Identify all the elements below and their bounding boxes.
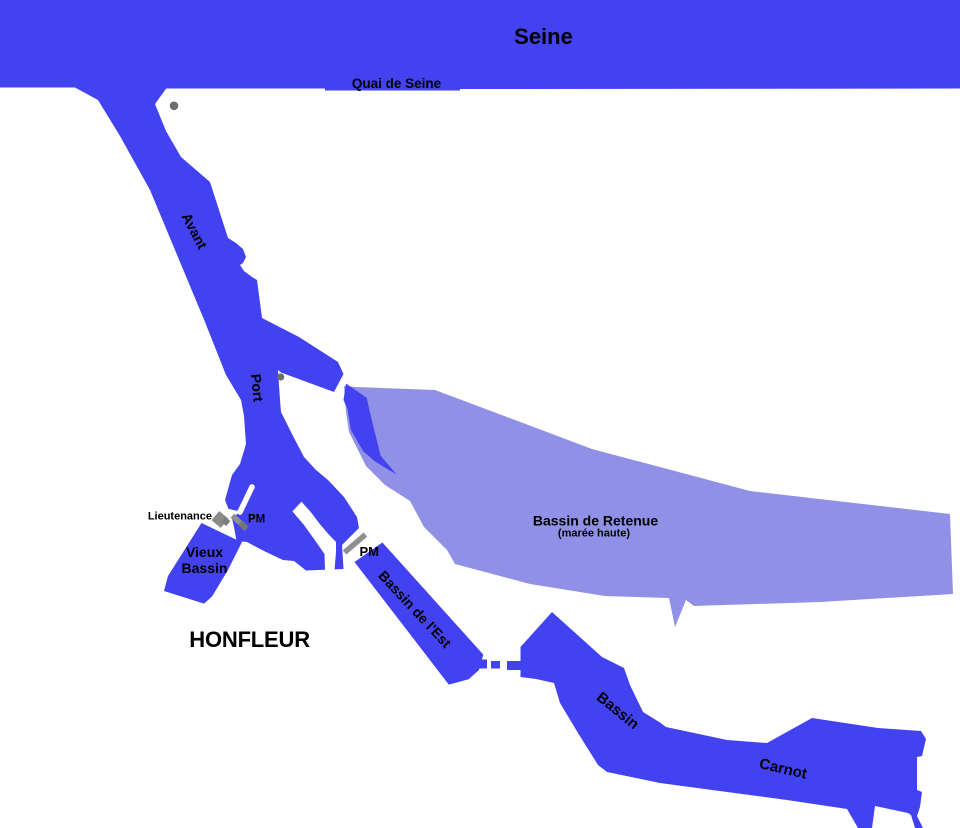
svg-text:Lieutenance: Lieutenance	[148, 511, 212, 523]
svg-text:HONFLEUR: HONFLEUR	[189, 627, 310, 652]
svg-text:Quai de Seine: Quai de Seine	[352, 76, 442, 91]
svg-text:Seine: Seine	[514, 24, 573, 49]
svg-text:Bassin: Bassin	[182, 560, 228, 576]
svg-text:PM: PM	[360, 544, 380, 559]
svg-text:Port: Port	[248, 373, 267, 403]
svg-text:(marée haute): (marée haute)	[558, 528, 630, 540]
svg-text:Vieux: Vieux	[186, 544, 223, 560]
svg-text:PM: PM	[248, 514, 265, 526]
svg-text:Bassin de Retenue: Bassin de Retenue	[533, 512, 658, 528]
